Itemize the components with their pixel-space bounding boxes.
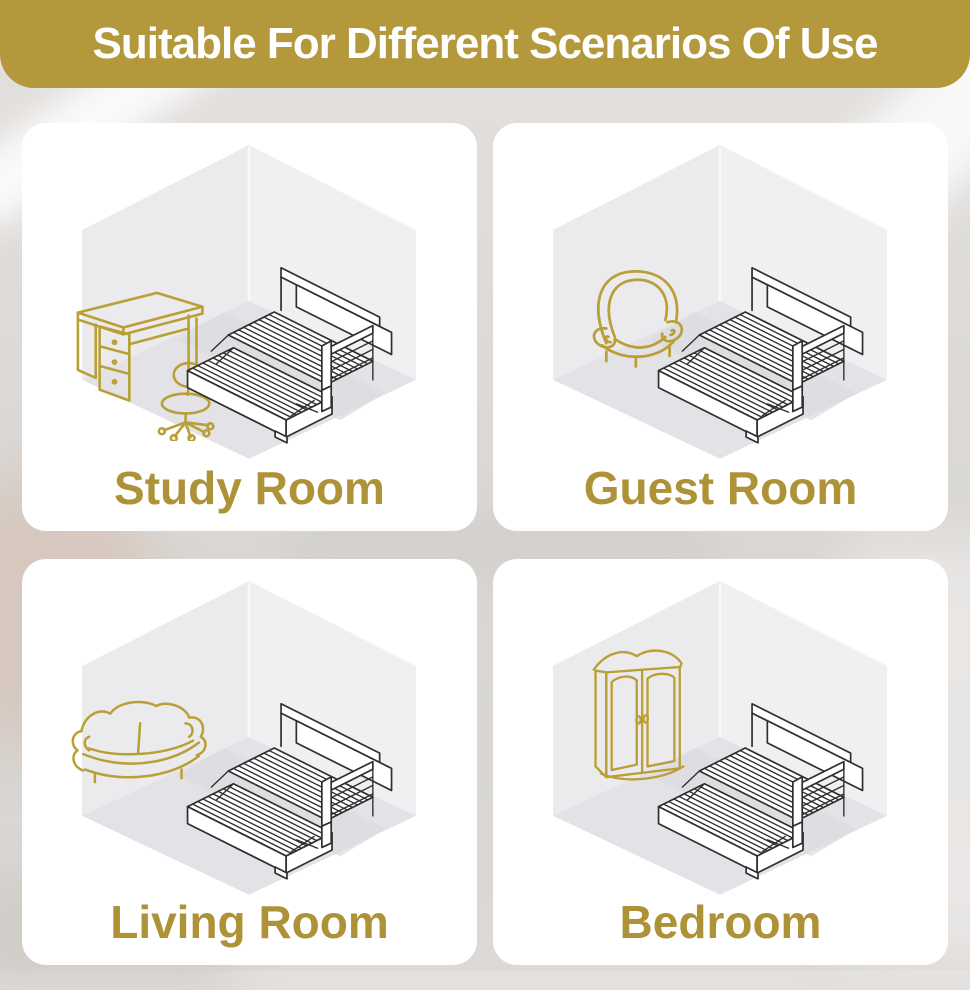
daybed-trundle-icon [656, 697, 894, 880]
scenario-label-bedroom: Bedroom [493, 895, 948, 949]
daybed-trundle-icon [185, 697, 423, 880]
scenario-card-living-room: Living Room [22, 559, 477, 965]
scenario-label-living-room: Living Room [22, 895, 477, 949]
daybed-trundle-icon [185, 261, 423, 444]
scenario-label-guest-room: Guest Room [493, 461, 948, 515]
daybed-trundle-icon [656, 261, 894, 444]
scenario-label-study-room: Study Room [22, 461, 477, 515]
scenario-card-study-room: Study Room [22, 123, 477, 531]
header-banner: Suitable For Different Scenarios Of Use [0, 0, 970, 88]
scenario-card-bedroom: Bedroom [493, 559, 948, 965]
page-title: Suitable For Different Scenarios Of Use [93, 19, 878, 69]
scenario-card-guest-room: Guest Room [493, 123, 948, 531]
